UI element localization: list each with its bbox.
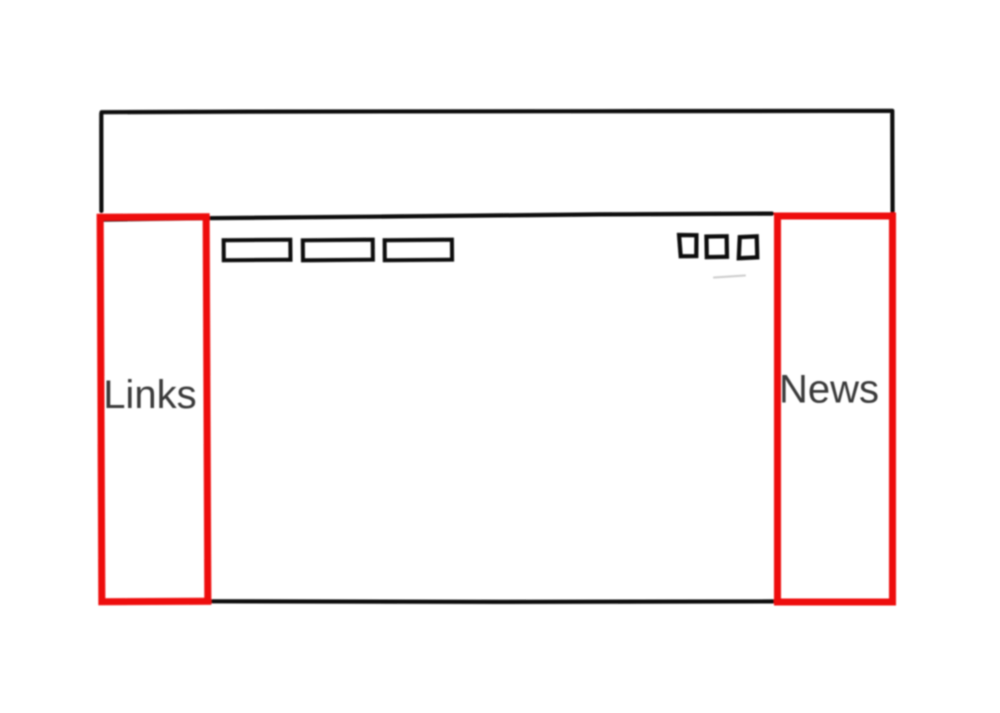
svg-text:News: News — [779, 368, 879, 412]
svg-text:Links: Links — [103, 373, 196, 417]
